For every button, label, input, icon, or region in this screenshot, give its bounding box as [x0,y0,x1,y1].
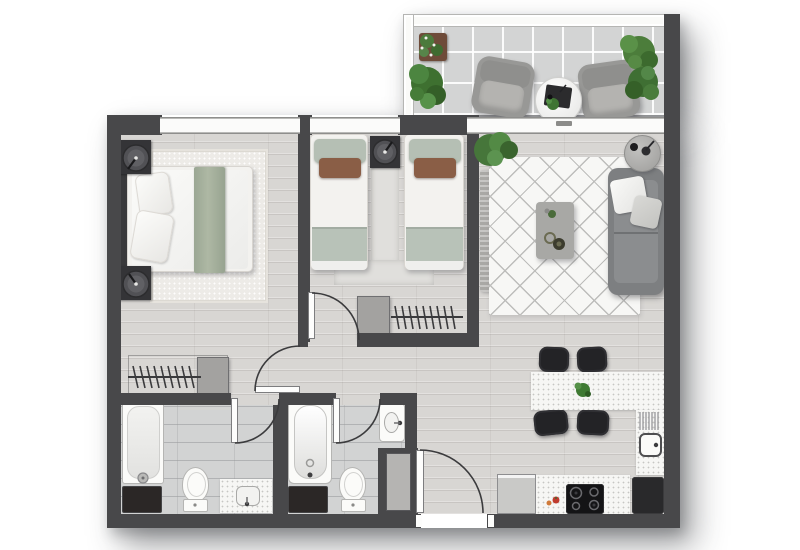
entry-jamb-left [416,515,422,527]
wall-bedroom2-bottom-b [357,333,479,347]
bedroom-2-window [310,117,400,134]
wall-outer-right [664,14,680,528]
wall-under-balcony [398,115,470,135]
wall-bath-top-b [279,393,336,405]
master-bedroom-window [160,117,300,134]
wall-bedroom2-bottom-a [298,333,308,347]
room-entry [417,450,495,514]
floorplan-canvas [0,0,800,550]
wall-bath-divider [273,405,288,514]
entry-jamb-right [488,515,494,527]
room-kitchen [497,410,664,514]
room-bathroom-2 [288,405,405,514]
wall-outer-bottom-right [487,514,680,528]
wall-bath-top-a [121,393,231,405]
room-balcony [412,25,664,115]
wall-bathroom2-right [405,393,417,450]
room-hallway [310,347,467,393]
wall-outer-bottom-left [107,514,421,528]
room-bedroom-2 [310,134,467,333]
wall-bedroom2-right [467,115,479,347]
room-living-room [479,134,664,340]
room-bathroom-1 [121,405,273,514]
wall-outer-left [107,115,121,528]
slider-handle [556,121,572,126]
wall-top-corner [107,115,162,135]
room-dining-area [497,340,664,410]
room-master-bedroom [121,134,298,393]
